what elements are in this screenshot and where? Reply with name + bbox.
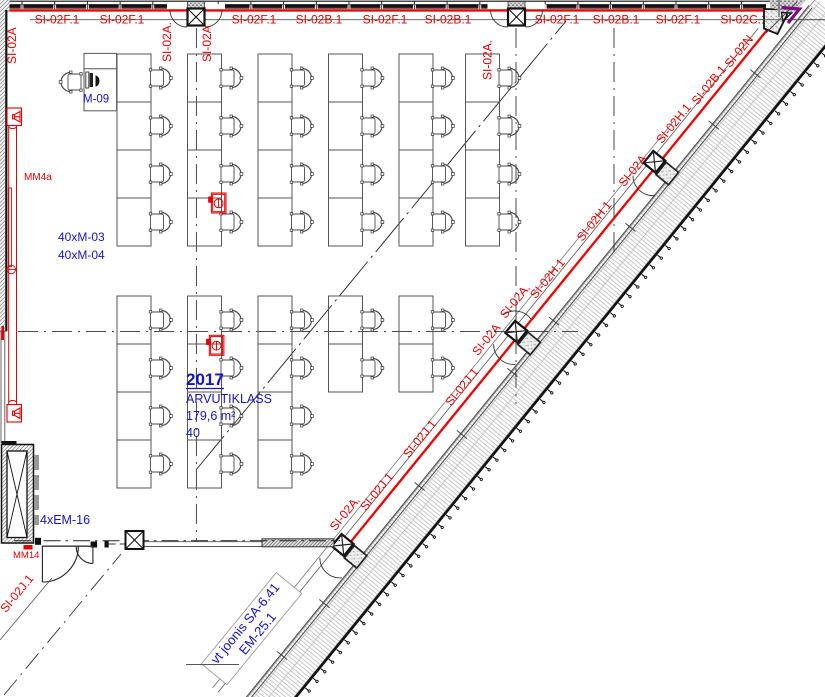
svg-text:SI-02F.1: SI-02F.1	[656, 13, 701, 27]
svg-text:SI-02A.: SI-02A.	[160, 22, 174, 62]
svg-text:ARVUTIKLASS: ARVUTIKLASS	[186, 392, 272, 406]
svg-text:SI-02F.1: SI-02F.1	[232, 13, 277, 27]
svg-text:SI-02A.: SI-02A.	[481, 40, 495, 80]
svg-text:SI-02A: SI-02A	[200, 25, 214, 62]
svg-text:SI-02B.1: SI-02B.1	[425, 13, 472, 27]
svg-text:SI-02B.1: SI-02B.1	[296, 13, 343, 27]
svg-text:SI-02F.1: SI-02F.1	[35, 13, 80, 27]
svg-text:SI-02B.1: SI-02B.1	[593, 13, 640, 27]
svg-text:40xM-03: 40xM-03	[58, 230, 105, 244]
svg-text:SI-02F.1: SI-02F.1	[363, 13, 408, 27]
svg-text:SI-02F.1: SI-02F.1	[535, 13, 580, 27]
svg-text:M-09: M-09	[83, 94, 109, 106]
svg-text:2017: 2017	[186, 370, 224, 389]
svg-text:40xM-04: 40xM-04	[58, 248, 105, 262]
svg-text:MM4a: MM4a	[24, 172, 52, 183]
svg-text:40: 40	[186, 426, 200, 440]
svg-text:MM14: MM14	[13, 550, 39, 561]
svg-text:4xEM-16: 4xEM-16	[40, 513, 90, 527]
svg-text:179,6 m²: 179,6 m²	[186, 409, 235, 423]
svg-text:SI-02F.1: SI-02F.1	[100, 13, 145, 27]
